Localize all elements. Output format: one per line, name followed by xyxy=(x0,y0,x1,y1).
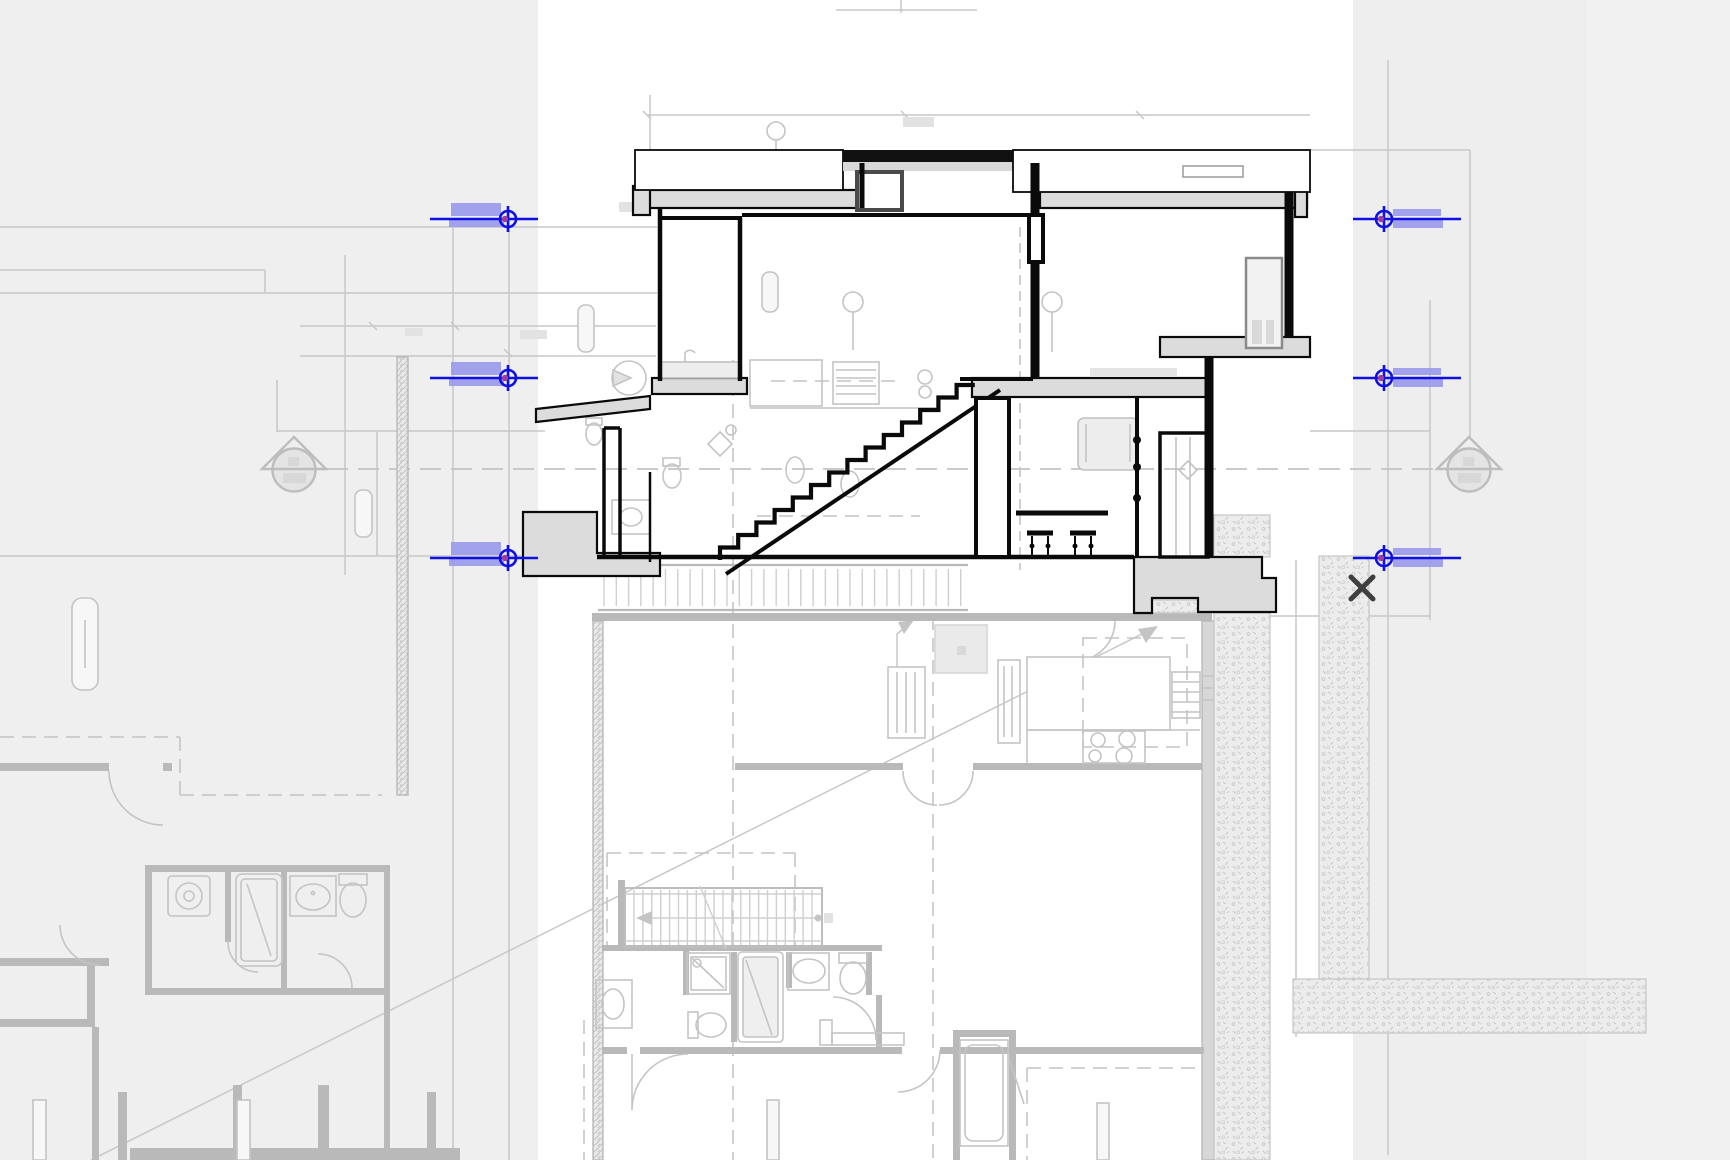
drawing-canvas[interactable] xyxy=(0,0,1730,1160)
cad-viewport[interactable] xyxy=(0,0,1730,1160)
